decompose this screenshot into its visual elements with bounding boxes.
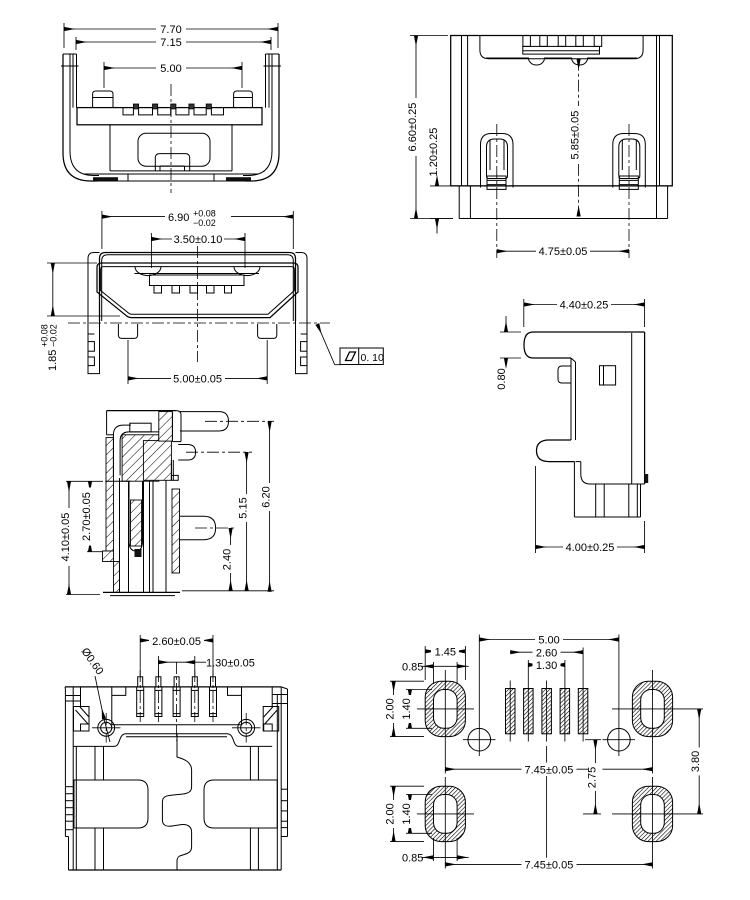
- svg-text:2.40: 2.40: [222, 549, 234, 570]
- svg-text:5.00: 5.00: [538, 635, 559, 647]
- svg-text:4.10±0.05: 4.10±0.05: [60, 513, 72, 562]
- svg-text:−0.02: −0.02: [193, 218, 216, 228]
- svg-text:6.20: 6.20: [261, 486, 273, 507]
- svg-text:−0.02: −0.02: [49, 324, 59, 347]
- svg-text:2.70±0.05: 2.70±0.05: [81, 492, 93, 541]
- svg-text:4.75±0.05: 4.75±0.05: [539, 246, 588, 258]
- svg-text:1.20±0.25: 1.20±0.25: [428, 128, 440, 177]
- svg-text:2.75: 2.75: [586, 767, 598, 788]
- svg-text:5.15: 5.15: [238, 497, 250, 518]
- svg-text:1.40: 1.40: [401, 803, 413, 824]
- svg-text:1.85: 1.85: [47, 350, 59, 371]
- svg-text:4.00±0.25: 4.00±0.25: [566, 542, 615, 554]
- svg-text:5.85±0.05: 5.85±0.05: [570, 111, 582, 160]
- svg-text:1.30±0.05: 1.30±0.05: [206, 658, 255, 670]
- svg-text:2.60: 2.60: [536, 648, 557, 660]
- svg-text:1.30: 1.30: [536, 660, 557, 672]
- svg-text:6.60±0.25: 6.60±0.25: [407, 103, 419, 152]
- svg-text:6.90: 6.90: [168, 212, 189, 224]
- svg-text:3.80: 3.80: [690, 751, 702, 772]
- svg-text:2.60±0.05: 2.60±0.05: [152, 636, 201, 648]
- svg-text:0.85: 0.85: [402, 853, 423, 865]
- svg-text:3.50±0.10: 3.50±0.10: [174, 234, 223, 246]
- svg-text:1.40: 1.40: [401, 698, 413, 719]
- svg-text:0.80: 0.80: [496, 368, 508, 389]
- svg-text:0.85: 0.85: [402, 662, 423, 674]
- svg-text:5.00: 5.00: [160, 63, 181, 75]
- svg-text:+0.08: +0.08: [193, 209, 216, 219]
- svg-text:5.00±0.05: 5.00±0.05: [173, 373, 222, 385]
- svg-text:7.70: 7.70: [160, 24, 181, 36]
- svg-text:4.40±0.25: 4.40±0.25: [560, 300, 609, 312]
- svg-text:2.00: 2.00: [385, 698, 397, 719]
- svg-text:0. 10: 0. 10: [361, 352, 385, 364]
- svg-text:7.45±0.05: 7.45±0.05: [524, 860, 573, 872]
- svg-text:7.15: 7.15: [160, 37, 181, 49]
- svg-text:7.45±0.05: 7.45±0.05: [524, 765, 573, 777]
- svg-text:2.00: 2.00: [385, 803, 397, 824]
- svg-text:1.45: 1.45: [435, 647, 456, 659]
